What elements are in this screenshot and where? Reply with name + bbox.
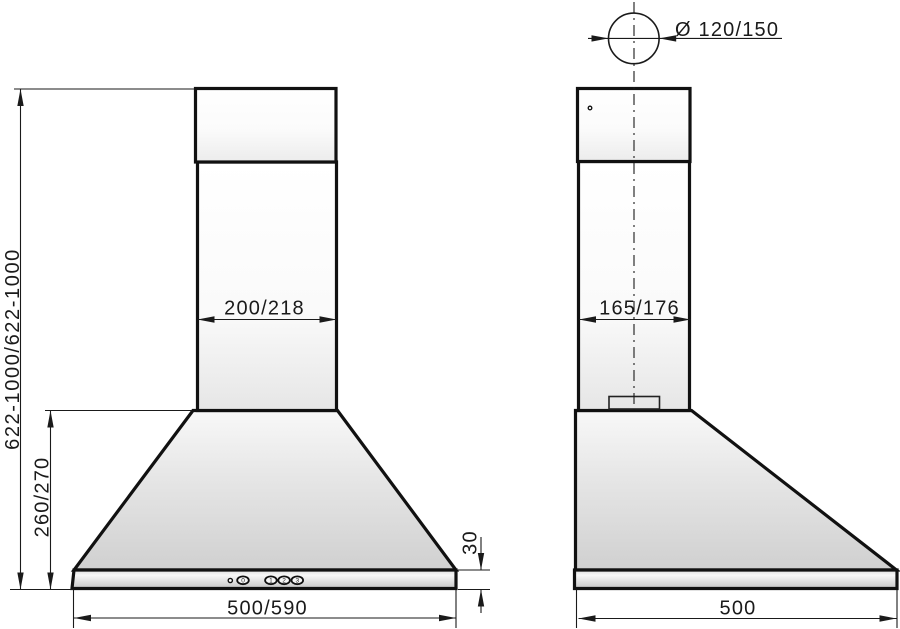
- svg-text:1: 1: [269, 578, 273, 585]
- svg-text:500/590: 500/590: [227, 598, 308, 620]
- svg-text:30: 30: [460, 530, 482, 555]
- svg-text:500: 500: [720, 598, 757, 620]
- svg-text:200/218: 200/218: [224, 298, 305, 320]
- svg-text:260/270: 260/270: [32, 457, 54, 538]
- svg-text:3: 3: [295, 578, 299, 585]
- svg-text:165/176: 165/176: [599, 298, 680, 320]
- svg-text:0: 0: [241, 578, 245, 585]
- svg-text:Ø 120/150: Ø 120/150: [675, 19, 779, 41]
- svg-text:2: 2: [282, 578, 286, 585]
- svg-text:622-1000/622-1000: 622-1000/622-1000: [2, 248, 24, 450]
